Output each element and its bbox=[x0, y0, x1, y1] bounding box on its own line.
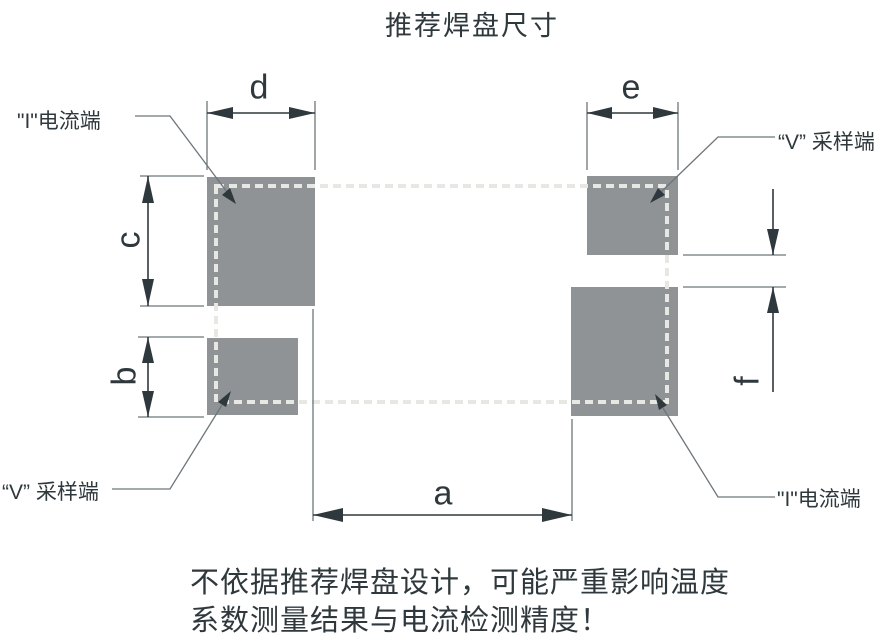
dim-d-arrow-left-icon bbox=[207, 107, 233, 119]
dim-b-arrow-top-icon bbox=[142, 337, 154, 363]
leader-bottom-right bbox=[663, 408, 775, 497]
dim-label-d: d bbox=[250, 69, 269, 108]
dim-label-e: e bbox=[622, 69, 641, 108]
dim-label-b: b bbox=[106, 367, 145, 386]
dim-f-arrow-up-icon bbox=[767, 287, 779, 313]
dim-c bbox=[140, 176, 204, 306]
pads bbox=[207, 176, 678, 416]
dim-f-arrow-down-icon bbox=[767, 229, 779, 255]
dim-f bbox=[683, 189, 786, 392]
dim-f-extension-lines bbox=[683, 255, 786, 287]
page-title: 推荐焊盘尺寸 bbox=[385, 4, 559, 43]
dim-label-a: a bbox=[434, 475, 453, 514]
pad-current-top-left bbox=[207, 177, 315, 306]
label-current-terminal-bottom-right: "I"电流端 bbox=[777, 483, 861, 513]
diagram-drawing bbox=[0, 0, 890, 640]
dim-e-arrow-right-icon bbox=[653, 107, 678, 119]
dim-e bbox=[587, 102, 678, 170]
label-sense-terminal-top-right: “V” 采样端 bbox=[778, 126, 875, 156]
dim-c-arrow-top-icon bbox=[142, 176, 154, 203]
dim-b-arrow-bottom-icon bbox=[142, 391, 154, 417]
dim-c-arrow-bottom-icon bbox=[142, 279, 154, 306]
dim-label-c: c bbox=[110, 232, 149, 249]
warning-note: 不依据推荐焊盘设计，可能严重影响温度 系数测量结果与电流检测精度！ bbox=[190, 564, 730, 640]
dim-a-arrow-left-icon bbox=[313, 508, 343, 522]
dim-e-arrow-left-icon bbox=[587, 107, 612, 119]
dim-d-arrow-right-icon bbox=[289, 107, 315, 119]
pad-current-bottom-right bbox=[571, 287, 678, 416]
dim-label-f: f bbox=[729, 376, 768, 385]
label-current-terminal-top-left: "I"电流端 bbox=[17, 105, 101, 135]
label-sense-terminal-bottom-left: “V” 采样端 bbox=[2, 476, 99, 506]
warning-line-1: 不依据推荐焊盘设计，可能严重影响温度 bbox=[190, 564, 730, 602]
dim-b bbox=[138, 337, 204, 417]
pad-layout-diagram: 推荐焊盘尺寸 "I"电流端 “V” 采样端 “V” 采样端 "I"电流端 a b… bbox=[0, 0, 890, 640]
warning-line-2: 系数测量结果与电流检测精度！ bbox=[190, 602, 730, 640]
dim-d bbox=[207, 101, 315, 170]
dim-a-arrow-right-icon bbox=[542, 508, 572, 522]
